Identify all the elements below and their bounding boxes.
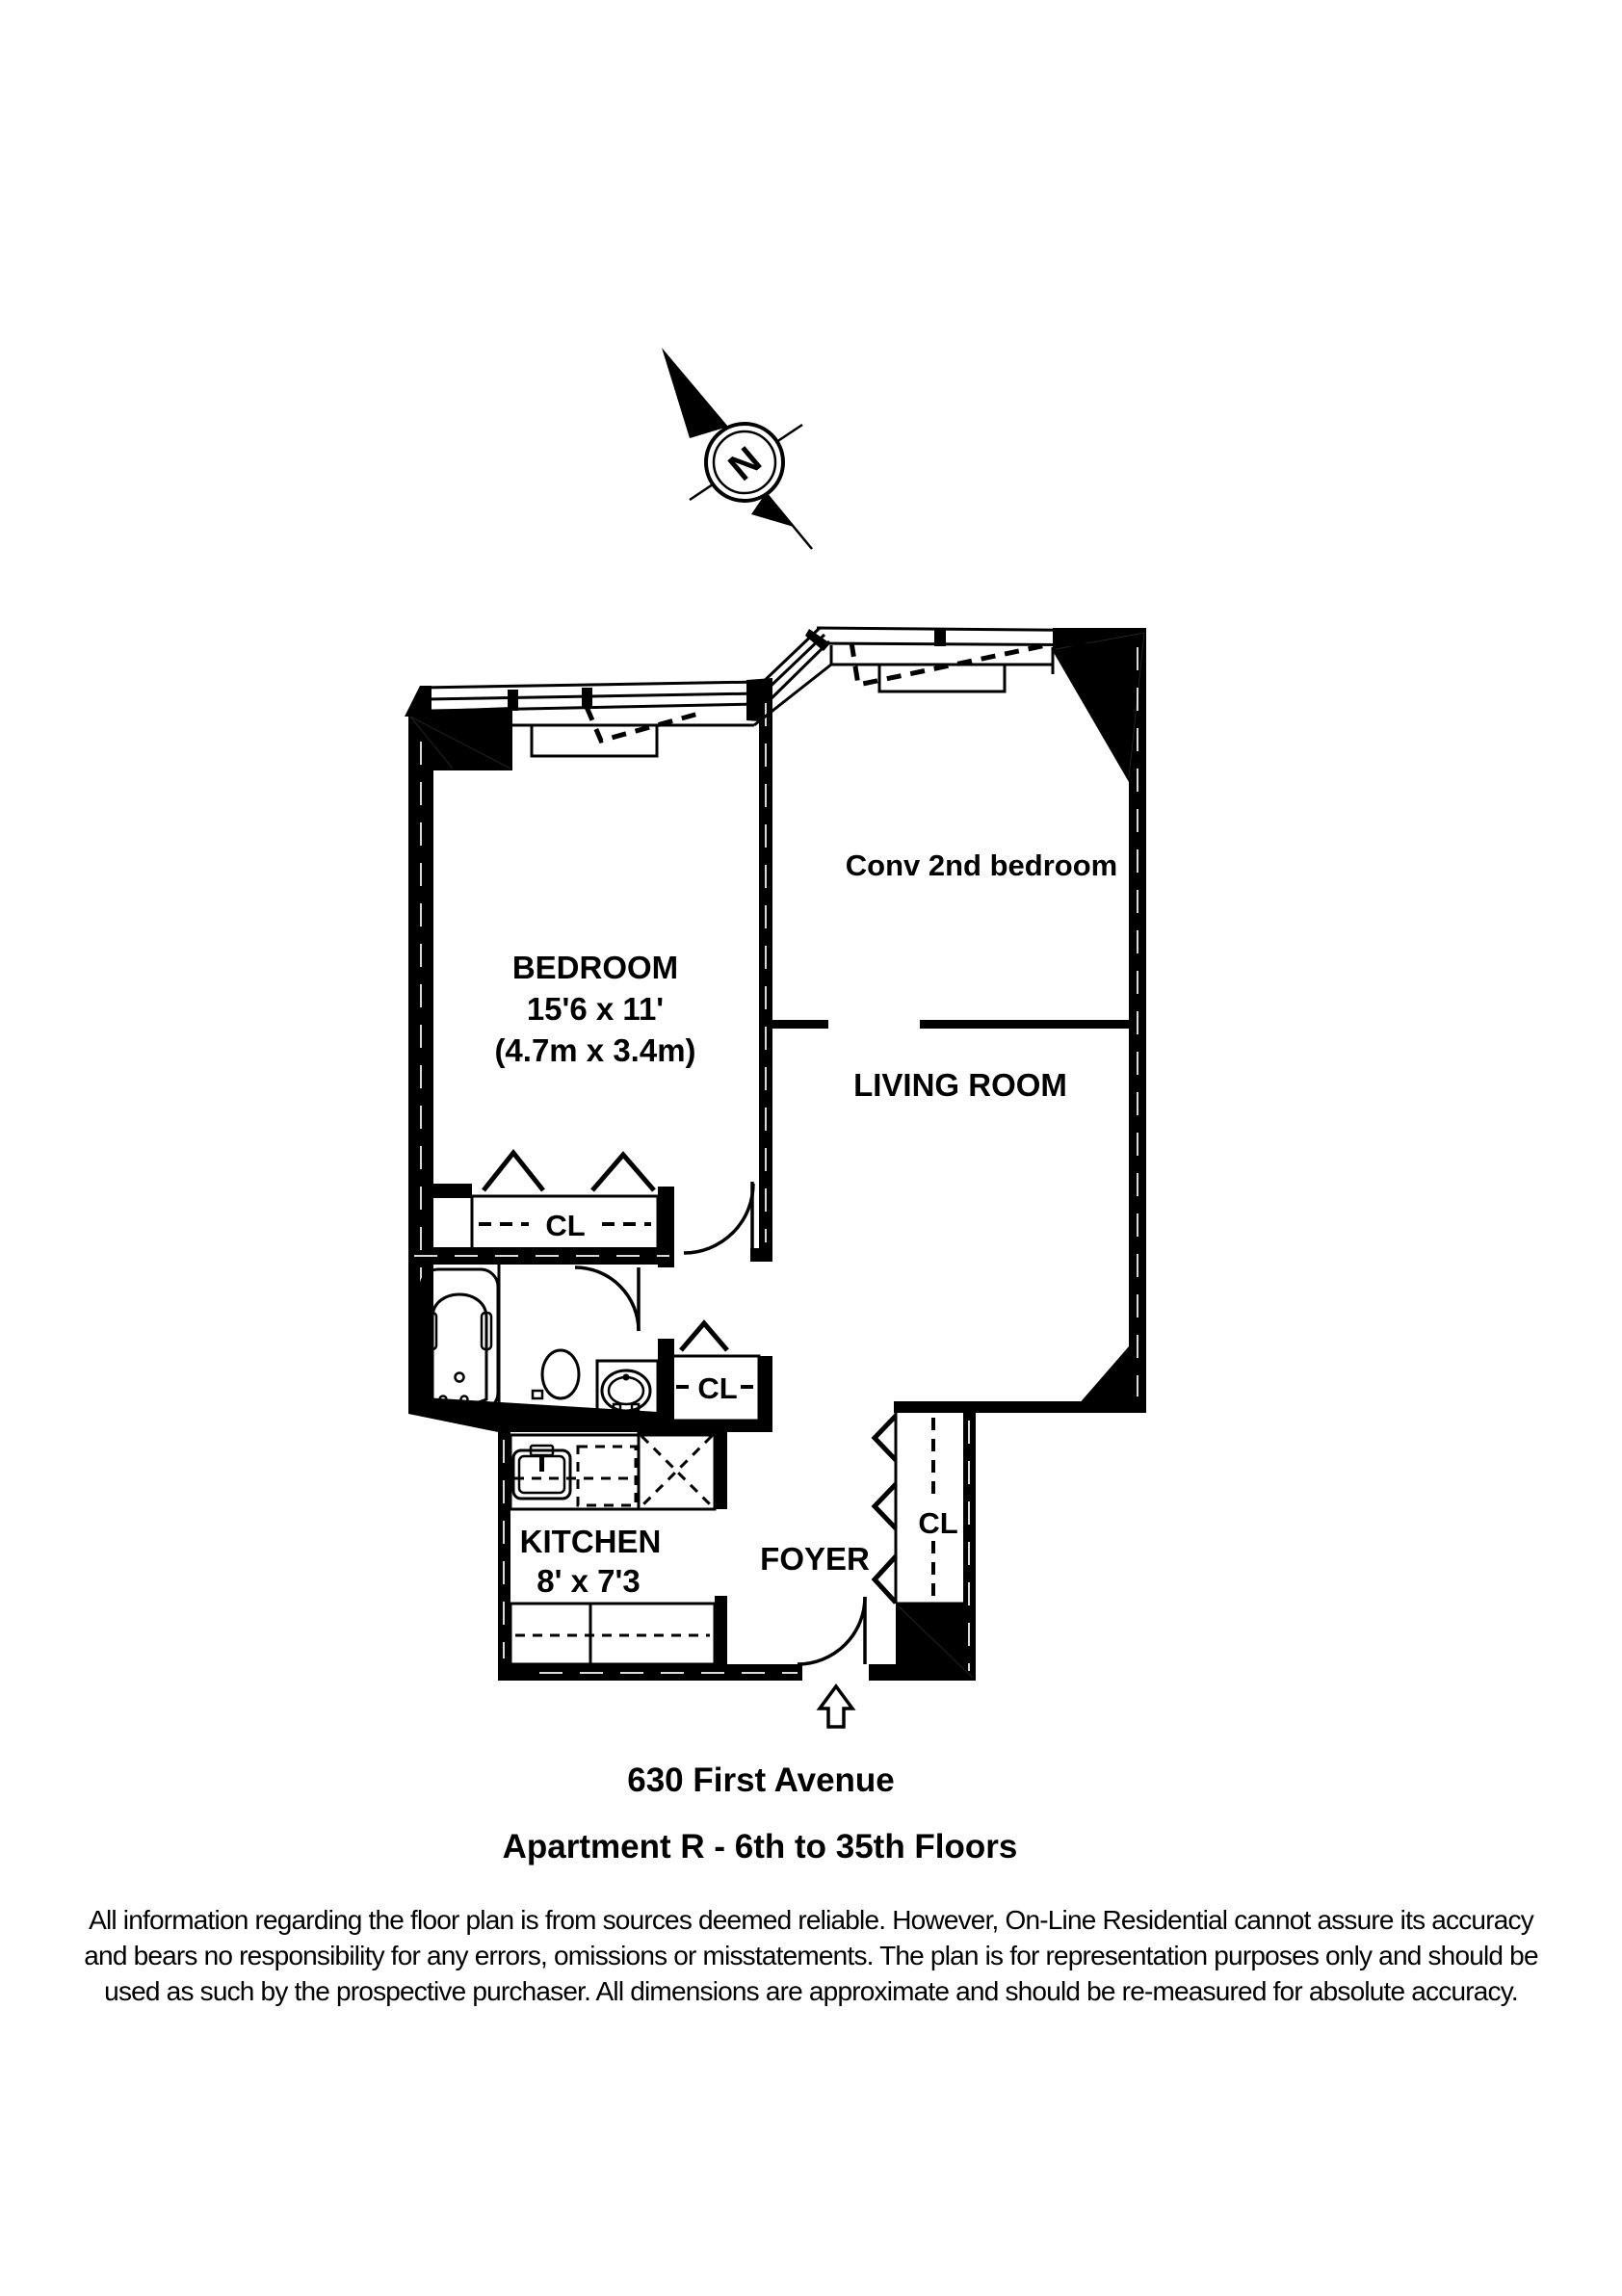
wall-kitchen-top — [498, 1421, 772, 1432]
address-title: 630 First Avenue — [627, 1761, 895, 1799]
bedroom-door-swing — [684, 1184, 753, 1253]
wall-partition-left — [772, 1020, 828, 1029]
bifold-door-icon — [592, 1155, 654, 1190]
bathtub-drain — [456, 1373, 464, 1382]
wall-wedge-bottomright — [1071, 1346, 1129, 1413]
floorplan-svg: N — [0, 0, 1622, 2296]
accordion-door-icon — [875, 1416, 896, 1460]
compass: N — [662, 348, 812, 549]
bath-sink-tap — [632, 1404, 639, 1410]
bedroom-dims-ft: 15'6 x 11' — [527, 991, 664, 1027]
living-room-label: LIVING ROOM — [853, 1067, 1067, 1103]
bedroom-window-mid — [427, 693, 759, 699]
bedroom-label: BEDROOM — [512, 950, 678, 985]
accordion-door-icon — [875, 1556, 896, 1603]
bathtub-dot — [461, 1396, 468, 1403]
bedroom-dims-m: (4.7m x 3.4m) — [494, 1032, 695, 1068]
apartment-title: Apartment R - 6th to 35th Floors — [503, 1828, 1018, 1865]
wall-closet-jamb — [433, 1184, 472, 1198]
entry-door-swing — [798, 1597, 865, 1664]
disclaimer-line-2: and bears no responsibility for any erro… — [84, 1941, 1538, 1970]
disclaimer-line-3: used as such by the prospective purchase… — [104, 1976, 1518, 2006]
floorplan-page: N — [0, 0, 1622, 2296]
bath-sink-tap — [614, 1404, 620, 1410]
closet-hall-label: CL — [697, 1371, 737, 1405]
wall-bedroom-living — [759, 684, 772, 1262]
conv-bedroom-label: Conv 2nd bedroom — [846, 848, 1117, 882]
kitchen-faucet-stem — [539, 1455, 544, 1472]
footer: 630 First Avenue Apartment R - 6th to 35… — [84, 1761, 1538, 2006]
kitchen-label: KITCHEN — [520, 1524, 662, 1559]
bay-window-mid — [762, 635, 824, 694]
bedroom-window-inner — [432, 704, 759, 711]
toilet-icon — [542, 1350, 579, 1398]
window-layer — [421, 628, 1146, 756]
toilet-flush — [533, 1391, 542, 1398]
closet-foyer-label: CL — [918, 1506, 957, 1540]
bathroom-door-swing — [575, 1267, 639, 1331]
bifold-door-icon — [681, 1323, 727, 1350]
kitchen-dims-ft: 8' x 7'3 — [536, 1563, 640, 1599]
foyer-label: FOYER — [760, 1541, 870, 1577]
wall-kitchen-right-upper — [715, 1432, 727, 1509]
wall-partition-right — [920, 1020, 1133, 1029]
label-layer: BEDROOM 15'6 x 11' (4.7m x 3.4m) Conv 2n… — [494, 848, 1117, 1599]
window-mullion-2 — [582, 688, 592, 709]
wall-bottom-right — [869, 1664, 976, 1681]
disclaimer-line-1: All information regarding the floor plan… — [89, 1905, 1534, 1935]
wall-kitchen-right-lower — [715, 1596, 727, 1681]
compass-needle-icon — [662, 348, 728, 438]
bath-sink-inner — [609, 1377, 643, 1404]
dishwasher — [578, 1447, 636, 1505]
bath-sink-faucet — [623, 1374, 630, 1381]
entry-arrow-icon — [820, 1686, 852, 1727]
compass-tail-line — [767, 494, 812, 549]
bathtub-inner — [432, 1294, 486, 1405]
closet-bedroom-label: CL — [545, 1209, 585, 1242]
bedroom-window-outer — [421, 682, 759, 688]
bay-window-outer — [757, 628, 820, 688]
living-window-inner — [817, 643, 1133, 645]
wall-hall-closet-right — [759, 1356, 772, 1432]
bifold-door-icon — [484, 1153, 543, 1190]
accordion-door-icon — [875, 1484, 896, 1528]
